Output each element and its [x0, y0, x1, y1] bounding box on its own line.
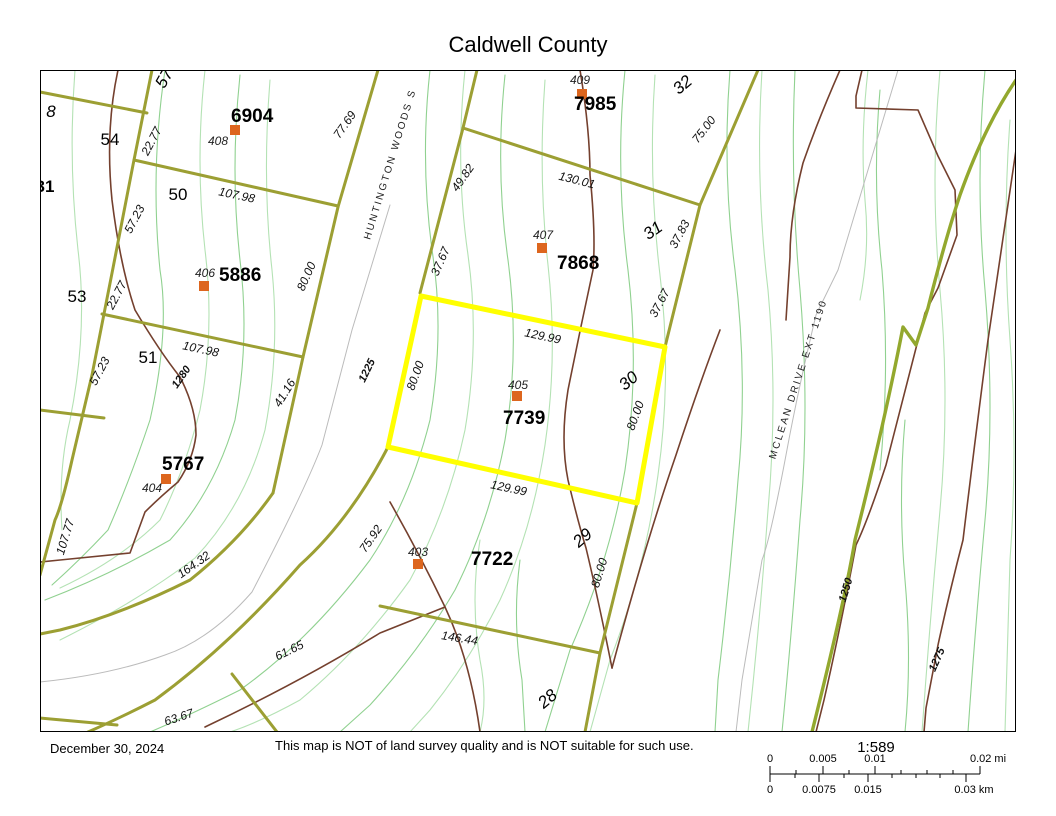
parcel-point-id: 405 [508, 378, 528, 392]
parcel-number[interactable]: 7739 [503, 408, 545, 429]
parcel-number[interactable]: 7722 [471, 549, 513, 570]
parcel-point-marker[interactable] [161, 474, 171, 484]
scale-bar [770, 766, 980, 782]
scale-mi-label: 0 [767, 753, 773, 765]
parcel-number[interactable]: 7868 [557, 253, 599, 274]
scale-mi-label: 0.005 [809, 753, 837, 765]
scale-km-labels: 00.00750.0150.03 km [767, 784, 994, 796]
scale-km-label: 0.015 [854, 784, 882, 796]
parcel-point-marker[interactable] [199, 281, 209, 291]
parcel-point-marker[interactable] [413, 559, 423, 569]
parcel-number[interactable]: 7985 [574, 94, 617, 115]
map-title: Caldwell County [449, 32, 608, 57]
lot-number: 53 [68, 287, 87, 306]
lot-number: 50 [169, 185, 188, 204]
lot-number: 31 [36, 177, 55, 196]
scale-km-label: 0.03 km [954, 784, 993, 796]
parcel-point-id: 409 [570, 73, 590, 87]
parcel-point-id: 403 [408, 545, 428, 559]
lot-number: 54 [101, 130, 120, 149]
disclaimer-text: This map is NOT of land survey quality a… [275, 738, 694, 753]
lot-number: 51 [139, 348, 158, 367]
parcel-number[interactable]: 5767 [162, 454, 204, 475]
parcel-point-id: 404 [142, 481, 162, 495]
map-page: { "title": "Caldwell County", "footer": … [0, 0, 1056, 816]
parcel-point-id: 408 [208, 134, 228, 148]
map-canvas[interactable]: Caldwell County [0, 0, 1056, 816]
scale-mi-label: 0.02 mi [970, 753, 1006, 765]
parcel-number[interactable]: 6904 [231, 106, 274, 127]
parcel-point-marker[interactable] [512, 391, 522, 401]
scale-km-label: 0.0075 [802, 784, 836, 796]
scale-km-label: 0 [767, 784, 773, 796]
parcel-point-id: 407 [533, 228, 554, 242]
lot-number: 8 [46, 102, 56, 121]
parcel-number[interactable]: 5886 [219, 265, 261, 286]
map-frame [41, 71, 1016, 732]
scale-mi-label: 0.01 [864, 753, 885, 765]
parcel-point-id: 406 [195, 266, 215, 280]
map-date: December 30, 2024 [50, 741, 164, 756]
parcel-point-marker[interactable] [537, 243, 547, 253]
